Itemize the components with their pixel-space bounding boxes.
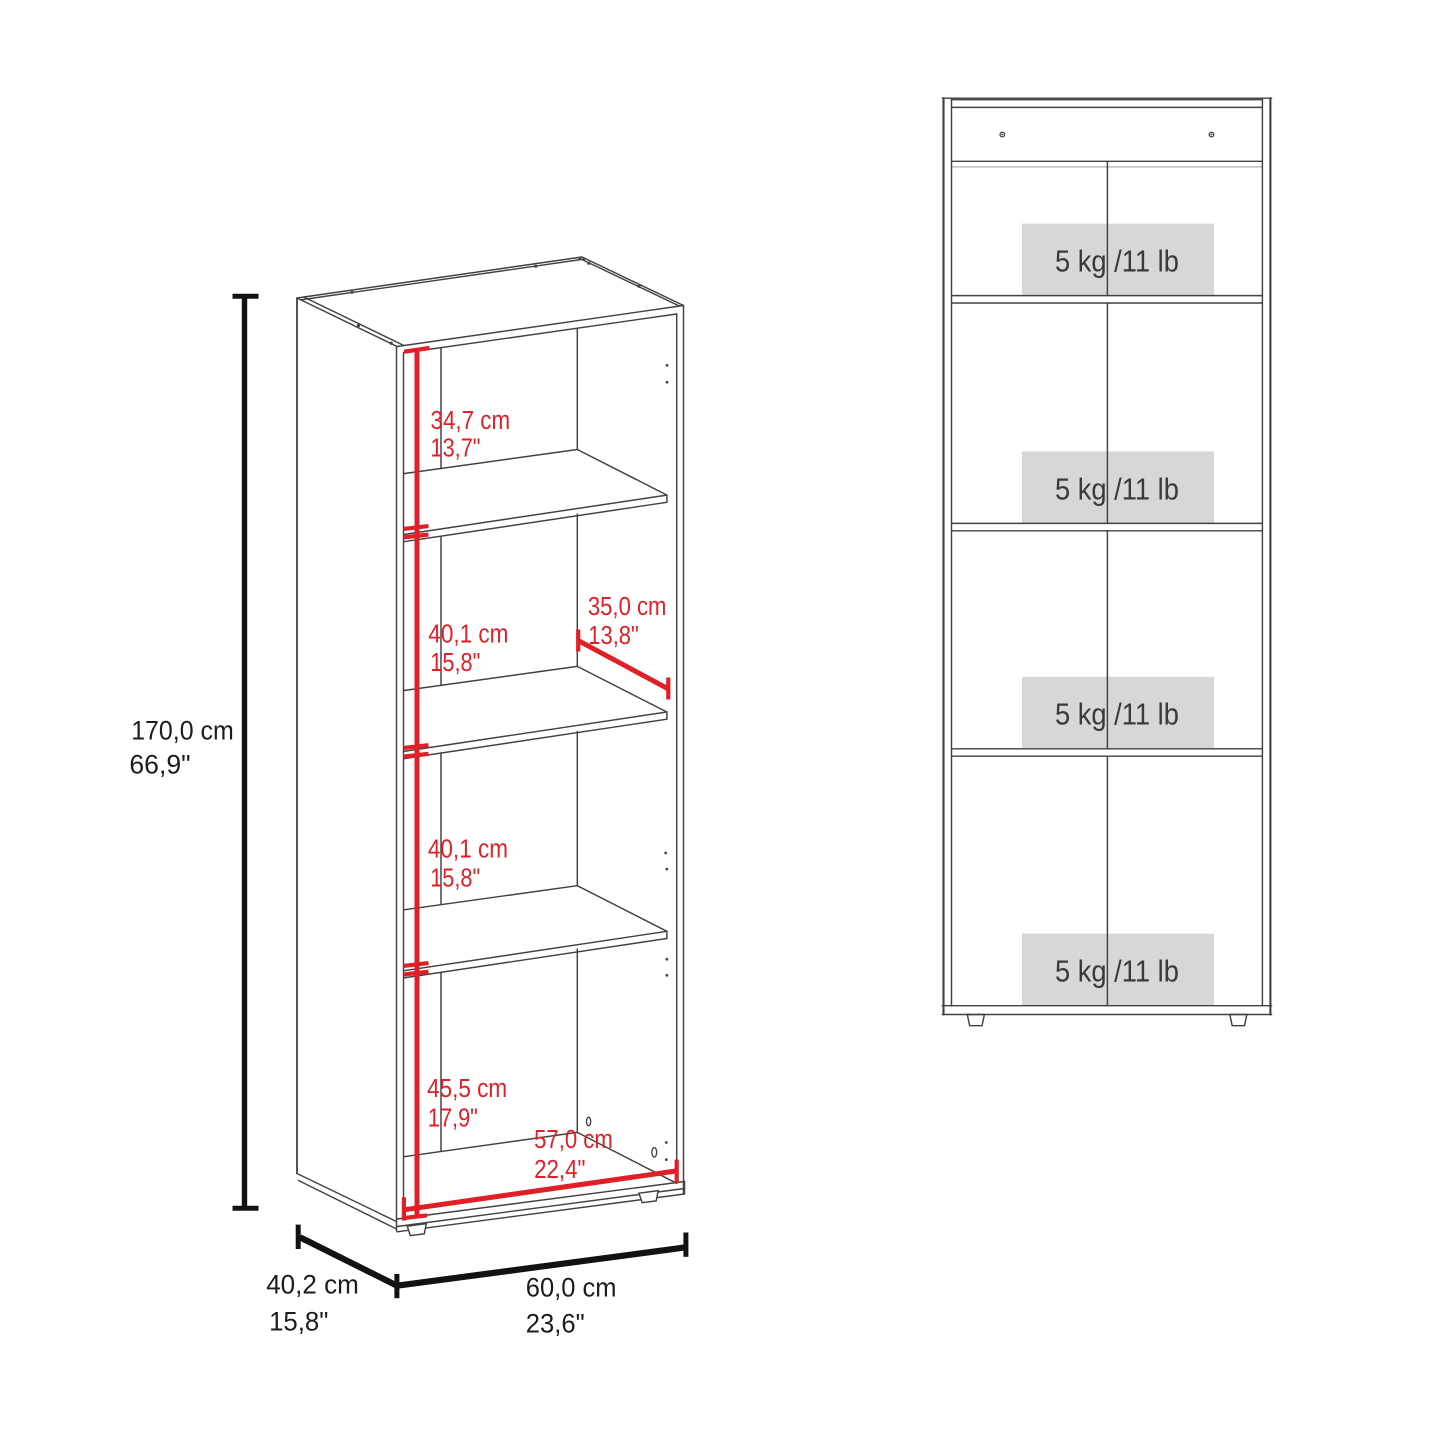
svg-text:15,8": 15,8" [269,1307,328,1337]
svg-text:34,7 cm: 34,7 cm [431,407,511,435]
svg-text:5 kg /11 lb: 5 kg /11 lb [1055,245,1179,279]
svg-text:5 kg /11 lb: 5 kg /11 lb [1055,698,1179,732]
svg-text:15,8": 15,8" [430,865,480,893]
svg-text:35,0 cm: 35,0 cm [588,593,667,621]
svg-text:15,8": 15,8" [430,649,480,677]
svg-text:57,0 cm: 57,0 cm [534,1126,613,1154]
svg-text:5 kg /11 lb: 5 kg /11 lb [1055,472,1179,506]
svg-text:40,1 cm: 40,1 cm [428,620,508,648]
svg-text:60,0 cm: 60,0 cm [526,1273,617,1303]
svg-text:23,6": 23,6" [526,1309,585,1339]
svg-text:40,1 cm: 40,1 cm [428,835,508,863]
svg-text:22,4": 22,4" [534,1156,585,1184]
svg-text:170,0 cm: 170,0 cm [131,716,234,746]
svg-text:40,2 cm: 40,2 cm [266,1270,359,1300]
svg-text:13,7": 13,7" [431,435,481,463]
svg-text:17,9": 17,9" [428,1104,478,1132]
svg-text:45,5 cm: 45,5 cm [427,1075,507,1103]
svg-text:66,9": 66,9" [129,749,190,779]
svg-text:13,8": 13,8" [588,622,639,650]
svg-text:5 kg /11 lb: 5 kg /11 lb [1055,955,1179,989]
